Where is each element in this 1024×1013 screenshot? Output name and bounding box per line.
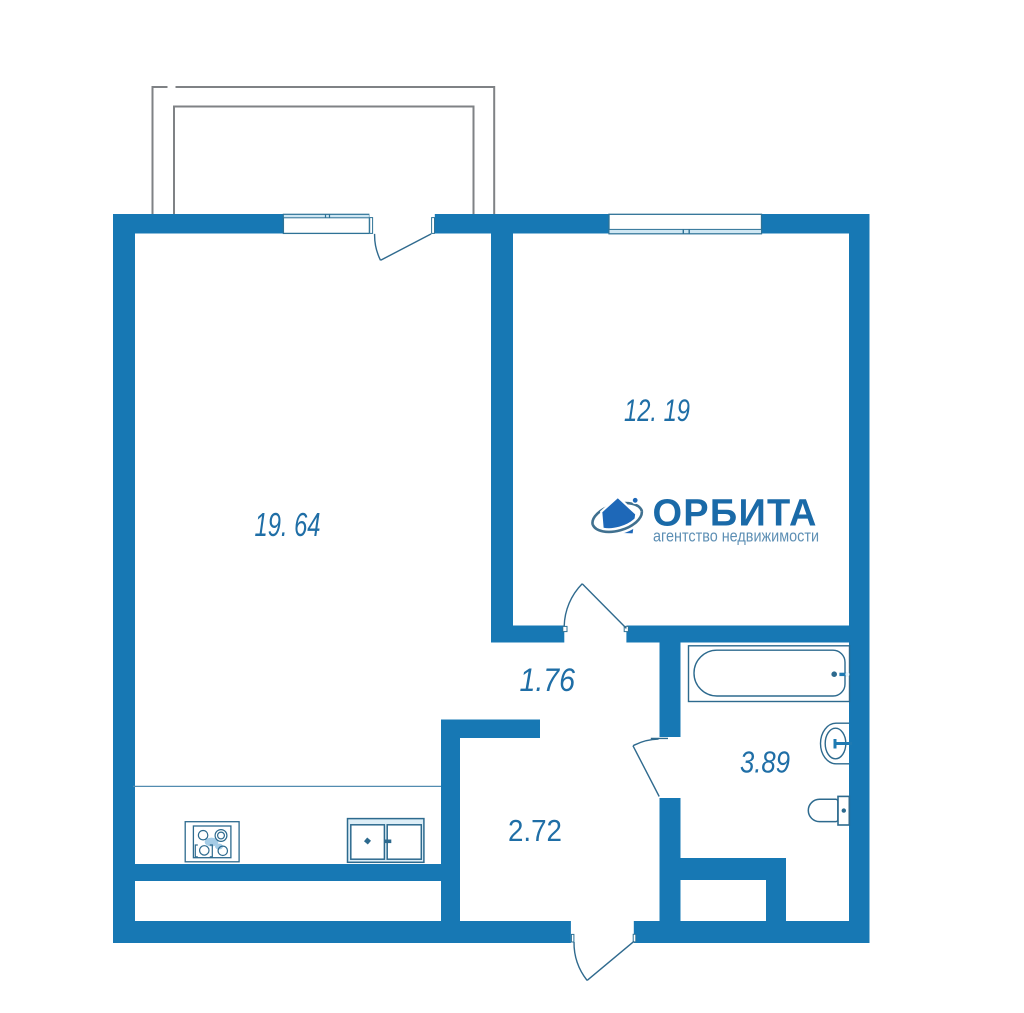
svg-text:12. 19: 12. 19 [624, 392, 690, 428]
svg-text:1.76: 1.76 [520, 662, 576, 698]
svg-text:3.89: 3.89 [740, 744, 790, 779]
svg-text:19. 64: 19. 64 [255, 506, 321, 543]
svg-text:агентство недвижимости: агентство недвижимости [653, 528, 819, 546]
svg-text:2.72: 2.72 [508, 814, 562, 848]
